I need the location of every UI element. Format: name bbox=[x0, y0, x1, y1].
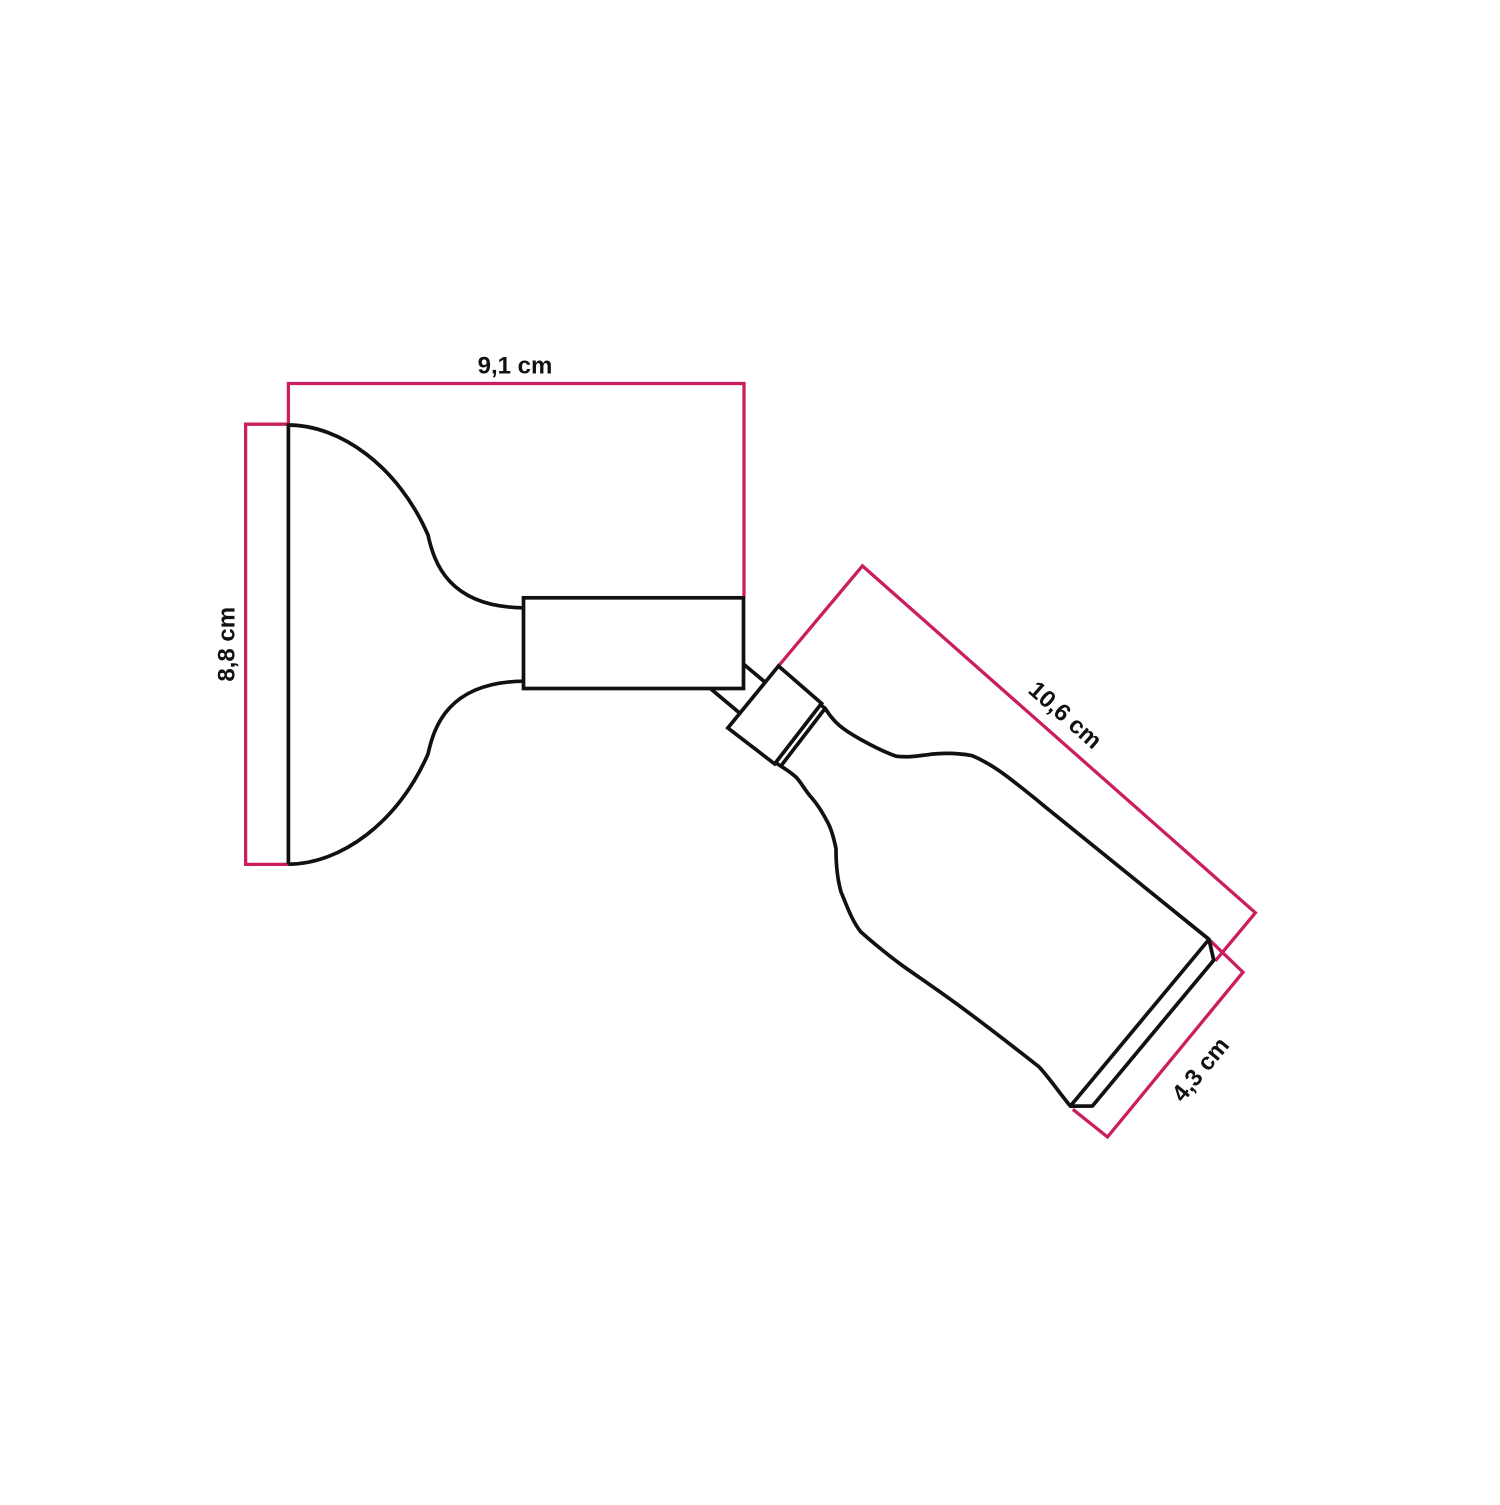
svg-text:8,8 cm: 8,8 cm bbox=[214, 607, 241, 682]
svg-text:9,1 cm: 9,1 cm bbox=[478, 353, 553, 380]
